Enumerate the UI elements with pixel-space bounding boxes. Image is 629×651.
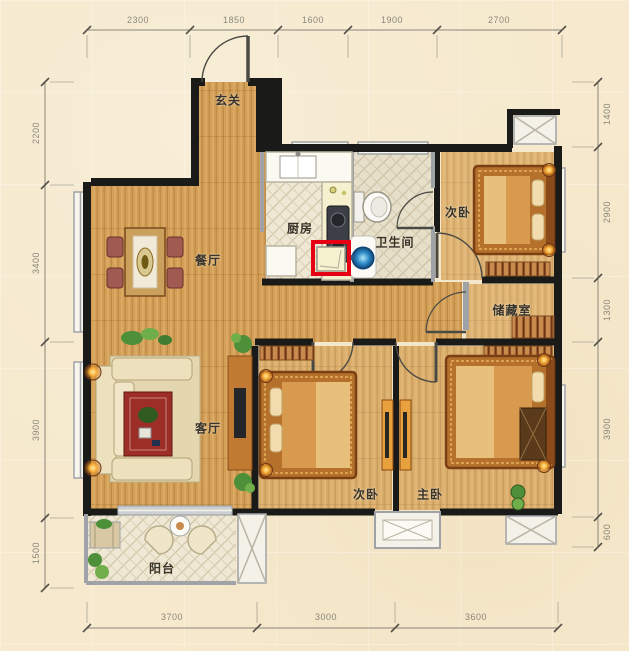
dim-bottom-3: 3600: [465, 612, 487, 622]
highlighted-region[interactable]: [311, 240, 351, 276]
floor-plan-page: 玄关 厨房 卫生间 次卧 餐厅 储藏室 客厅 次卧 主卧 阳台 2300 185…: [0, 0, 629, 651]
dim-top-3: 1600: [302, 15, 324, 25]
dim-left-3: 3900: [31, 419, 41, 441]
balcony-slider: [118, 506, 232, 515]
dim-right-3: 1300: [602, 299, 612, 321]
dim-right-1: 1400: [602, 103, 612, 125]
dim-bottom-1: 3700: [161, 612, 183, 622]
room-label-master: 主卧: [417, 486, 443, 503]
room-label-bedroom-top: 次卧: [445, 204, 471, 221]
dim-bottom-2: 3000: [315, 612, 337, 622]
storage-shelf: [512, 316, 554, 338]
dim-right-5: 600: [602, 524, 612, 541]
dim-right-2: 2900: [602, 201, 612, 223]
room-label-living: 客厅: [195, 420, 221, 437]
room-label-storage: 储藏室: [492, 302, 531, 319]
room-label-balcony: 阳台: [149, 560, 175, 577]
dim-top-4: 1900: [381, 15, 403, 25]
floor-plan-drawing: [0, 0, 629, 651]
dim-left-4: 1500: [31, 542, 41, 564]
room-label-bathroom: 卫生间: [375, 234, 414, 251]
dim-top-1: 2300: [127, 15, 149, 25]
bay-window: [375, 512, 440, 548]
sofa-set: [85, 356, 200, 482]
room-label-kitchen: 厨房: [287, 220, 313, 237]
room-label-bedroom-bottom: 次卧: [353, 486, 379, 503]
room-label-dining: 餐厅: [195, 252, 221, 269]
tv-cabinet: [228, 333, 255, 493]
dim-top-2: 1850: [223, 15, 245, 25]
wall-block: [256, 78, 282, 152]
dim-right-4: 3900: [602, 418, 612, 440]
room-label-entry: 玄关: [215, 92, 241, 109]
dim-top-5: 2700: [488, 15, 510, 25]
dim-left-2: 3400: [31, 252, 41, 274]
dim-left-1: 2200: [31, 122, 41, 144]
